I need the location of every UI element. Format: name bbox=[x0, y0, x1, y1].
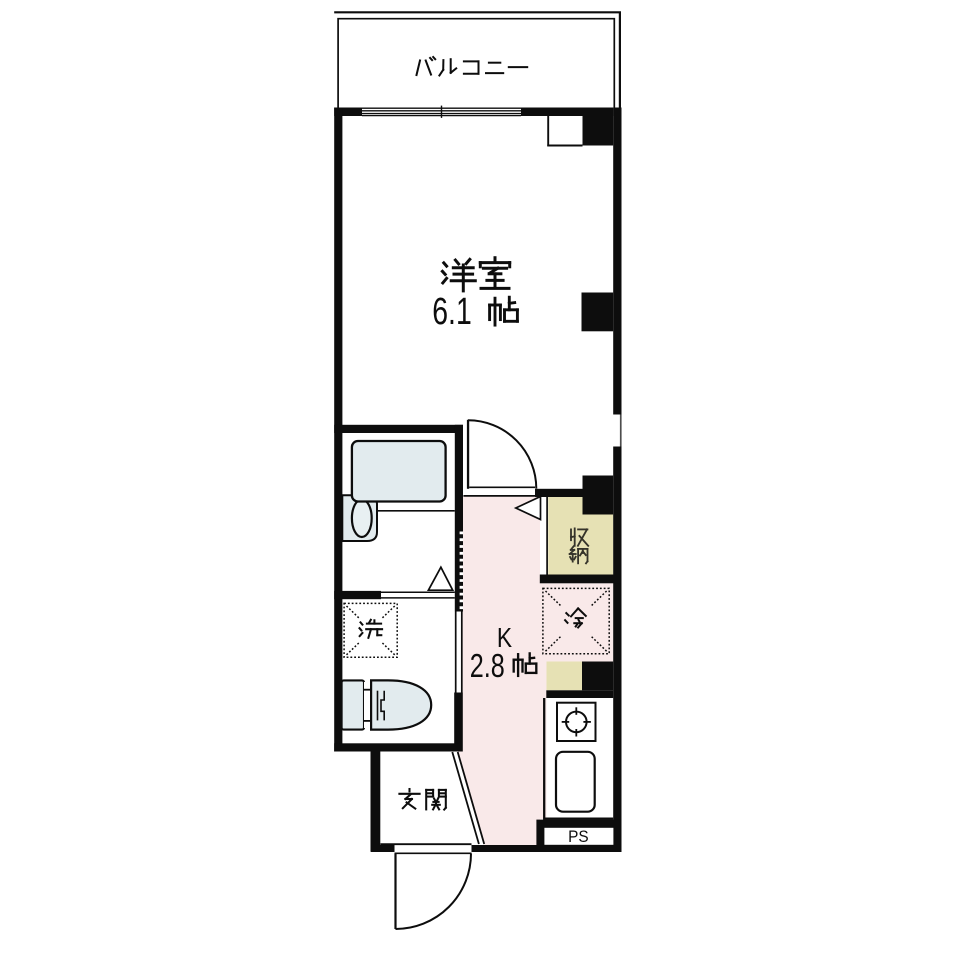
svg-text:6.1: 6.1 bbox=[432, 291, 472, 333]
svg-text:PS: PS bbox=[568, 827, 589, 846]
svg-text:2.8: 2.8 bbox=[470, 648, 505, 685]
